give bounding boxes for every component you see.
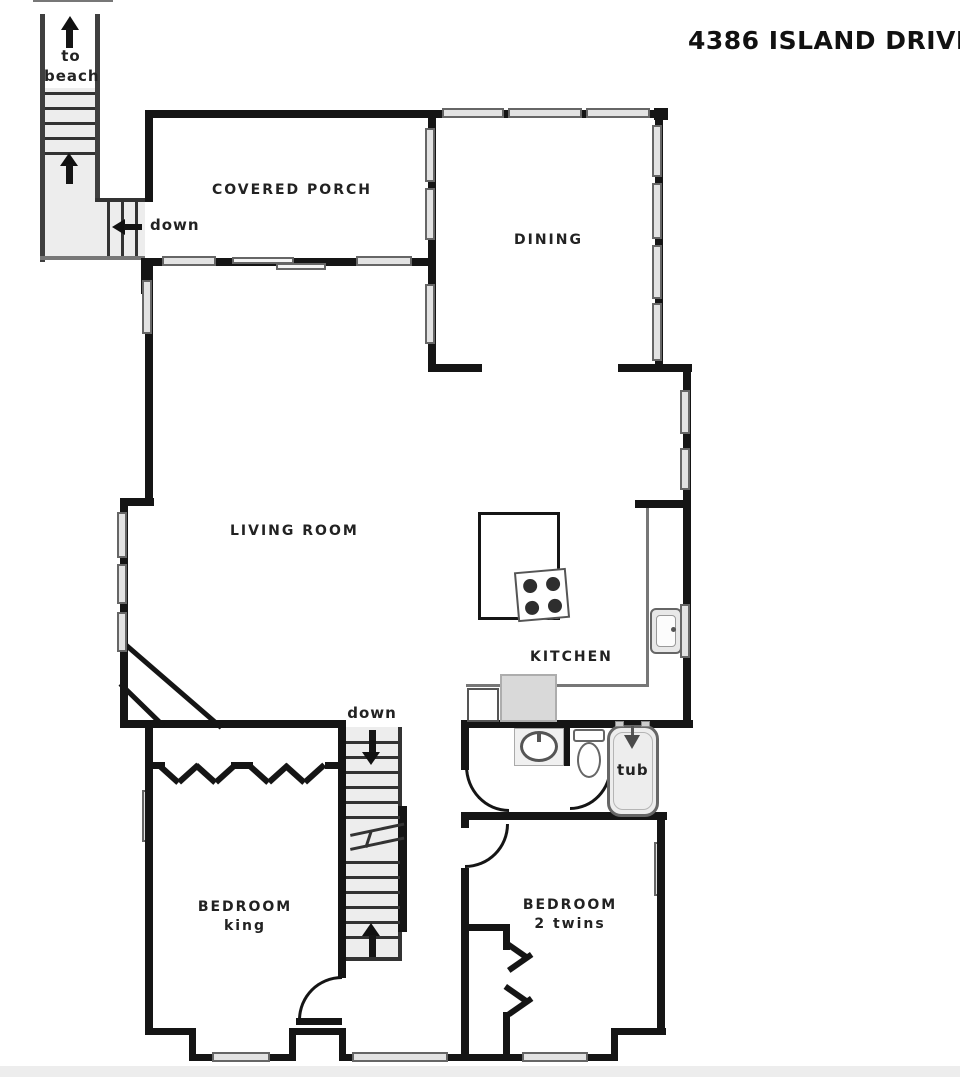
wall-segment: [461, 868, 469, 1056]
faucet-icon: [671, 627, 676, 632]
stair-tread: [346, 816, 400, 819]
window: [356, 256, 412, 266]
stair-tread: [346, 876, 400, 879]
covered-porch-label: COVERED PORCH: [212, 181, 372, 200]
wall-segment: [145, 1028, 194, 1035]
stair-tread: [135, 202, 138, 258]
window: [652, 125, 662, 177]
tub-handle-icon: [641, 721, 650, 727]
stair-tread: [346, 771, 400, 774]
wall-segment: [461, 728, 469, 770]
window: [652, 183, 662, 239]
pantry-cabinet: [467, 688, 499, 722]
door-leaf: [296, 1018, 342, 1025]
door-swing-arc: [298, 976, 342, 1020]
arrow-up-icon: [66, 164, 73, 184]
arrow-up-icon: [66, 28, 73, 48]
window: [680, 448, 690, 490]
stair-tread: [346, 891, 400, 894]
wall-segment: [120, 720, 346, 728]
kitchen-label: KITCHEN: [530, 648, 613, 667]
refrigerator: [500, 674, 557, 722]
window: [212, 1052, 270, 1062]
bifold-door-chevron: [214, 763, 237, 785]
window: [425, 128, 435, 182]
window: [680, 390, 690, 434]
kitchen-sink: [650, 608, 682, 654]
wall-segment: [618, 364, 692, 372]
window: [425, 284, 435, 344]
wall-segment: [289, 1028, 345, 1035]
stair-tread: [107, 202, 110, 258]
shower-head-icon: [624, 735, 640, 749]
tub-label: tub: [617, 760, 649, 780]
tub-handle-icon: [615, 721, 624, 727]
fireplace-corner-line: [121, 640, 223, 730]
bifold-door-chevron: [157, 763, 180, 785]
window: [586, 108, 650, 118]
window: [117, 512, 127, 558]
stair-tread: [45, 92, 95, 95]
wall-segment: [635, 500, 691, 508]
bifold-door-chevron: [247, 763, 270, 785]
wall-segment: [325, 762, 343, 769]
scan-band: [0, 1066, 960, 1077]
burner-icon: [525, 600, 540, 615]
window: [352, 1052, 448, 1062]
stair-tread: [346, 786, 400, 789]
wall-segment: [145, 728, 153, 1028]
kitchen-counter-line: [646, 508, 649, 686]
bedroom-twins-label: BEDROOM 2 twins: [510, 896, 630, 934]
wall-segment: [503, 1012, 510, 1056]
toilet-tank: [573, 729, 605, 742]
window: [117, 564, 127, 604]
burner-icon: [523, 578, 538, 593]
faucet-icon: [537, 733, 541, 742]
floor-plan: 4386 ISLAND DRIVE to beach down: [0, 0, 960, 1077]
stair-tread: [346, 801, 400, 804]
dining-label: DINING: [514, 231, 583, 250]
arrow-down-icon: [369, 730, 376, 754]
to-beach-label: to beach: [44, 46, 98, 87]
stair-tread: [346, 861, 400, 864]
stove-cooktop: [514, 568, 570, 622]
window: [522, 1052, 588, 1062]
arrow-up-icon: [369, 935, 376, 957]
bedroom-king-label: BEDROOM king: [185, 898, 305, 936]
arrow-down-icon: [362, 752, 380, 765]
toilet-bowl: [577, 742, 601, 778]
window: [652, 245, 662, 299]
window: [117, 612, 127, 652]
bifold-door-chevron: [303, 763, 326, 785]
stair-landing-edge: [40, 256, 145, 260]
stair-tread: [45, 107, 95, 110]
wall-segment: [657, 812, 665, 1035]
living-room-label: LIVING ROOM: [230, 522, 359, 541]
window: [162, 256, 216, 266]
wall-segment: [563, 728, 570, 766]
bifold-door-chevron: [283, 763, 306, 785]
wall-segment: [428, 364, 482, 372]
burner-icon: [545, 576, 560, 591]
wall-segment: [611, 1028, 666, 1035]
stair-edge: [346, 957, 400, 961]
stair-tread: [346, 906, 400, 909]
window: [425, 188, 435, 240]
stair-tread: [45, 122, 95, 125]
burner-icon: [547, 598, 562, 613]
plan-title: 4386 ISLAND DRIVE: [688, 26, 960, 55]
window: [652, 303, 662, 361]
kitchen-counter-line: [466, 684, 649, 687]
stairs-down-label: down: [150, 215, 200, 235]
door-swing-arc: [465, 766, 509, 812]
stairs-down-label: down: [344, 703, 400, 723]
window: [142, 280, 152, 334]
door-swing-arc: [465, 824, 509, 868]
arrow-left-icon: [124, 224, 142, 230]
sliding-door: [276, 263, 326, 270]
stair-tread: [45, 137, 95, 140]
window: [442, 108, 504, 118]
wall-segment: [145, 110, 153, 202]
plan-edge-line: [33, 0, 113, 2]
bifold-door-chevron: [194, 763, 217, 785]
stair-wall: [95, 14, 100, 199]
window: [508, 108, 582, 118]
